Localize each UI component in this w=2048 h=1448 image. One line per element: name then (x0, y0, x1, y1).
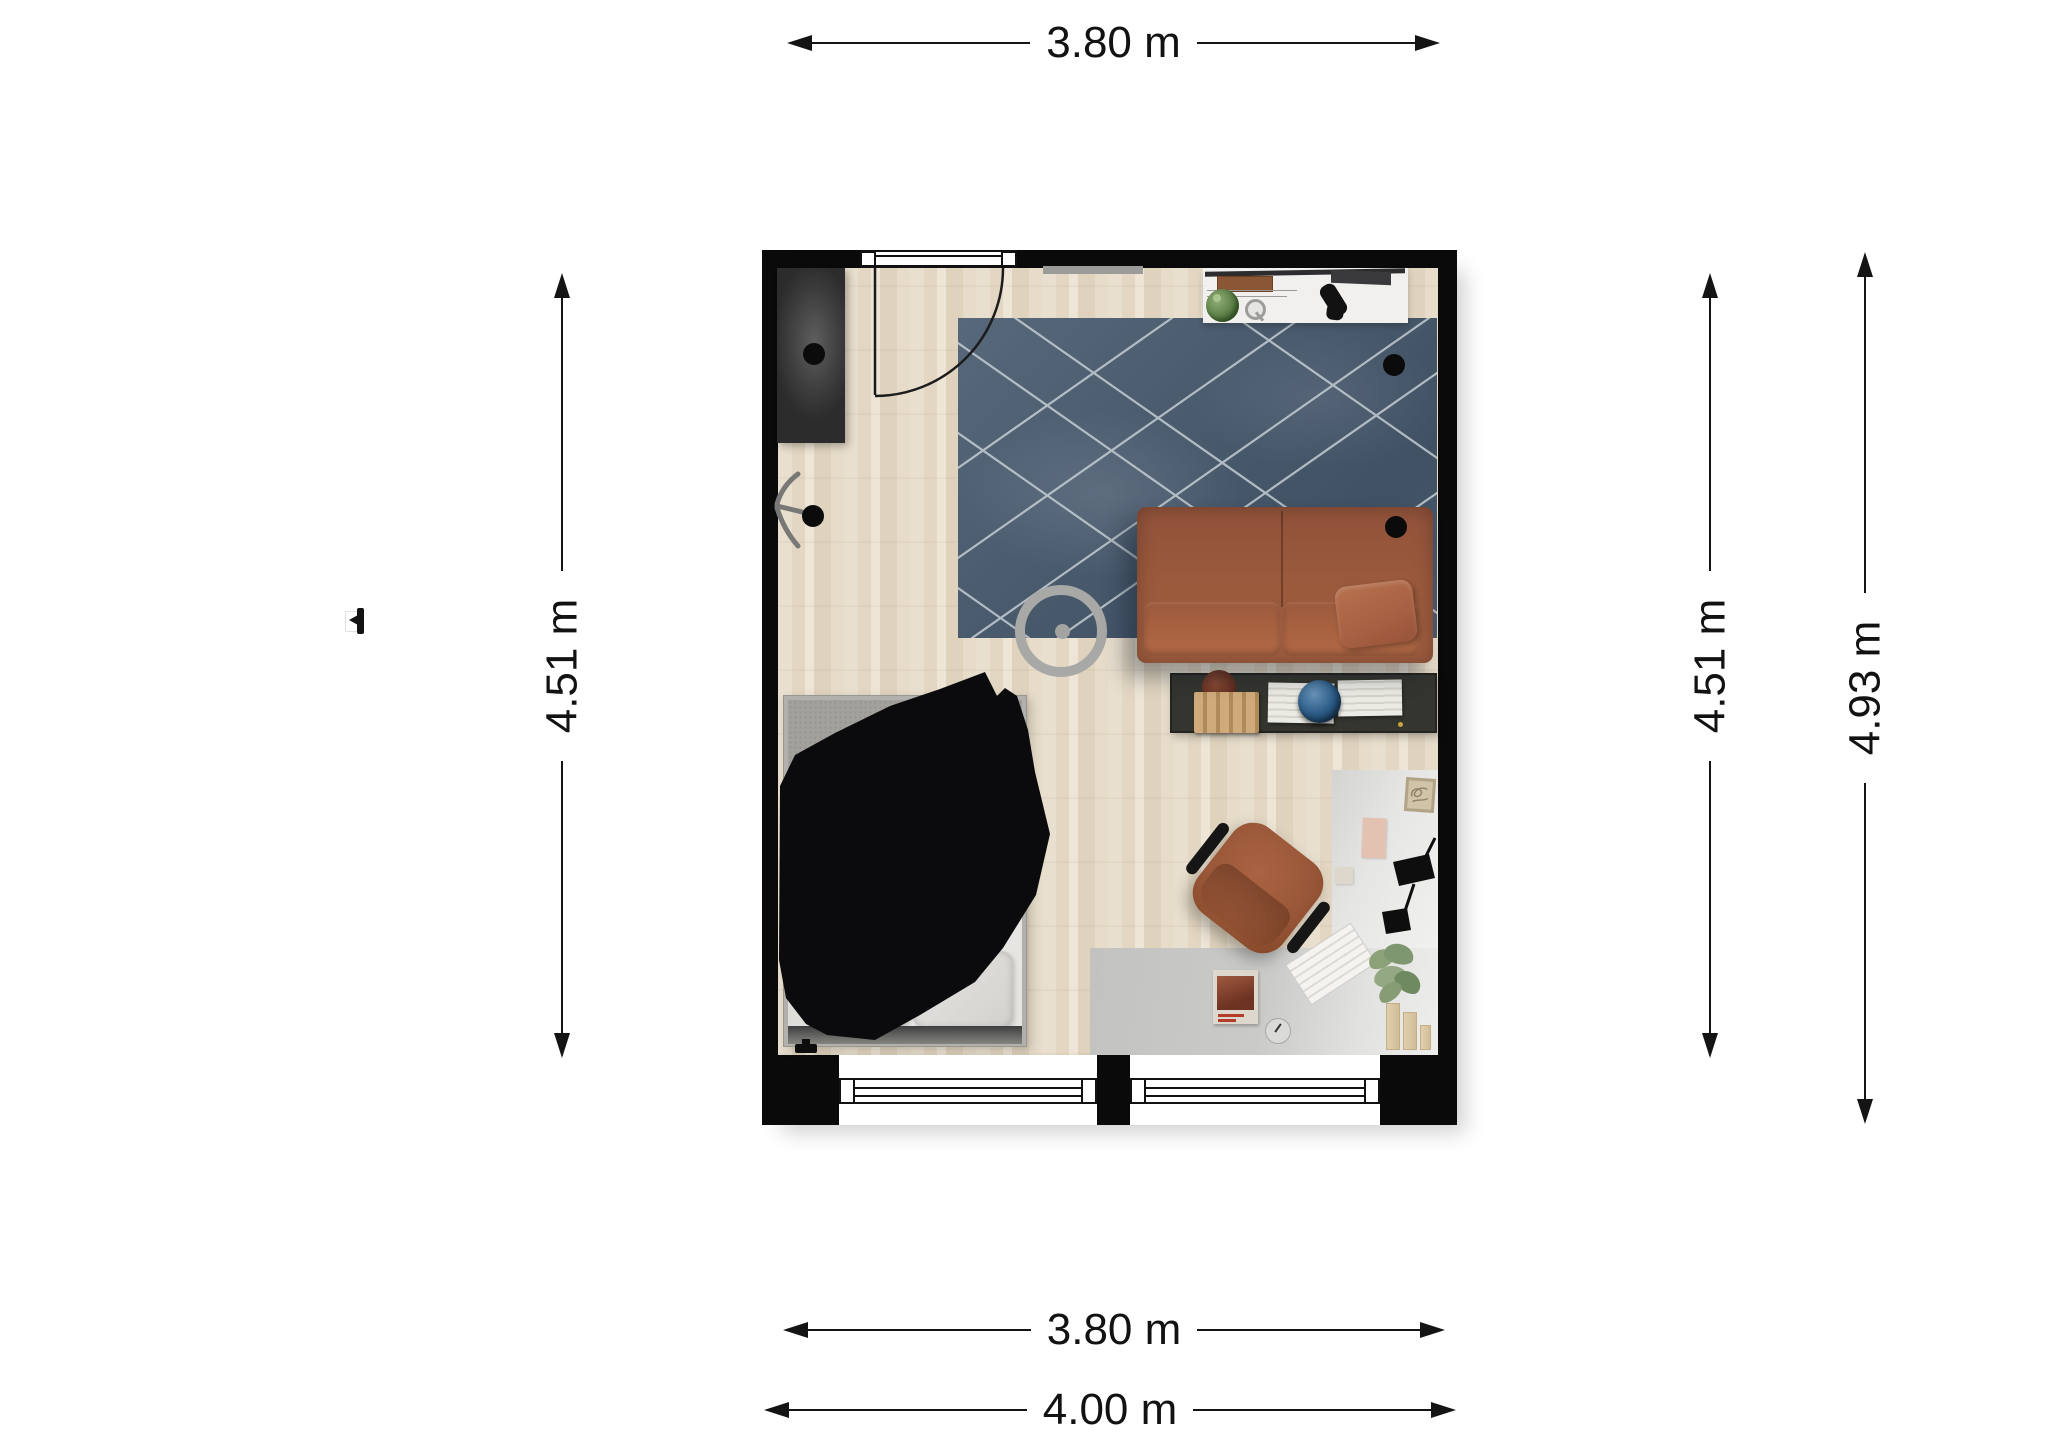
window-frame-cap (1081, 1078, 1097, 1104)
dimension-line (561, 761, 563, 1034)
artifact-tick-icon (349, 615, 358, 625)
window-right (1130, 1055, 1380, 1125)
sofa-seam (1281, 511, 1283, 607)
dimension-line (1864, 783, 1866, 1099)
dimension-label-left: 4.51 m (540, 598, 584, 733)
dimension-label-bottom-inner: 3.80 m (1031, 1308, 1198, 1352)
door-glazing (874, 255, 1003, 267)
wall-art (1404, 777, 1436, 813)
dimension-line (1193, 1409, 1431, 1411)
small-brass-knob (1398, 722, 1403, 727)
magazine-title (1218, 1014, 1244, 1017)
window-frame-cap (1130, 1078, 1146, 1104)
door-frame-cap (1001, 251, 1017, 267)
paper-tray-1 (1386, 1003, 1400, 1050)
paper-tray-3 (1420, 1025, 1431, 1050)
arrowhead-up-icon (554, 273, 570, 298)
magazine-photo (1217, 976, 1254, 1010)
dimension-top: 3.80 m (787, 16, 1440, 70)
magazine-subtitle (1218, 1019, 1236, 1022)
arrowhead-right-icon (1420, 1322, 1445, 1338)
artifact-bar (357, 608, 364, 634)
arrowhead-down-icon (554, 1033, 570, 1058)
page: { "page": {"background": "#ffffff", "typ… (0, 0, 2048, 1448)
desk-clock (1265, 1018, 1291, 1044)
entry-door (860, 250, 1017, 268)
note-paper (1335, 867, 1353, 884)
arrowhead-right-icon (1415, 35, 1440, 51)
arrowhead-down-icon (1702, 1033, 1718, 1058)
dimension-right-inner: 4.51 m (1682, 273, 1738, 1058)
window-glazing (1145, 1078, 1365, 1104)
arrowhead-left-icon (764, 1402, 789, 1418)
seat-cushion-left (1144, 602, 1280, 656)
wall-switch (795, 1044, 817, 1053)
pink-paper (1361, 818, 1386, 859)
pillow-right (913, 951, 1013, 1028)
ceiling-light-icon (1385, 516, 1407, 538)
arrowhead-left-icon (783, 1322, 808, 1338)
dimension-line (1197, 42, 1415, 44)
lumbar-cushion (1334, 578, 1419, 649)
ceiling-light-icon (1383, 354, 1405, 376)
window-left (839, 1055, 1097, 1125)
magazine (1213, 970, 1258, 1024)
curtain-rail (1043, 266, 1143, 274)
tv-stand (1331, 270, 1391, 286)
dimension-label-right-inner: 4.51 m (1688, 598, 1732, 733)
dimension-label-right-outer: 4.93 m (1843, 621, 1887, 756)
ceiling-light-icon (803, 343, 825, 365)
dimension-label-top: 3.80 m (1030, 21, 1197, 65)
door-frame-cap (860, 251, 876, 267)
dimension-right-outer: 4.93 m (1837, 252, 1893, 1124)
arrowhead-up-icon (1702, 273, 1718, 298)
dimension-line (789, 1409, 1027, 1411)
dimension-line (1197, 1329, 1420, 1331)
dimension-bottom-outer: 4.00 m (764, 1383, 1456, 1437)
dimension-bottom-inner: 3.80 m (783, 1303, 1445, 1357)
ring-lamp-center (1055, 624, 1070, 639)
arrowhead-right-icon (1431, 1402, 1456, 1418)
headboard (788, 1026, 1022, 1044)
arrowhead-left-icon (787, 35, 812, 51)
media-console (1170, 673, 1437, 733)
dimension-label-bottom-outer: 4.00 m (1027, 1388, 1194, 1432)
floor-plan (762, 250, 1457, 1125)
dimension-line (1709, 761, 1711, 1034)
magnifier-icon (1245, 299, 1266, 320)
art-scribble (1407, 780, 1433, 810)
pillow-left (848, 954, 909, 1028)
dimension-line (1864, 277, 1866, 593)
plant (1206, 289, 1239, 322)
window-frame-cap (839, 1078, 855, 1104)
dimension-line (561, 298, 563, 571)
window-frame-cap (1364, 1078, 1380, 1104)
dimension-left: 4.51 m (534, 273, 590, 1058)
file-organizer (1194, 692, 1259, 733)
dimension-line (1709, 298, 1711, 571)
dimension-line (808, 1329, 1031, 1331)
bed (783, 695, 1027, 1047)
dimension-line (812, 42, 1030, 44)
arrowhead-up-icon (1857, 252, 1873, 277)
book-stack-right (1338, 679, 1403, 716)
window-glazing (854, 1078, 1082, 1104)
globe (1298, 680, 1341, 723)
arrowhead-down-icon (1857, 1099, 1873, 1124)
ceiling-light-icon (802, 505, 824, 527)
mattress (788, 700, 1022, 905)
paper-tray-2 (1403, 1012, 1417, 1050)
